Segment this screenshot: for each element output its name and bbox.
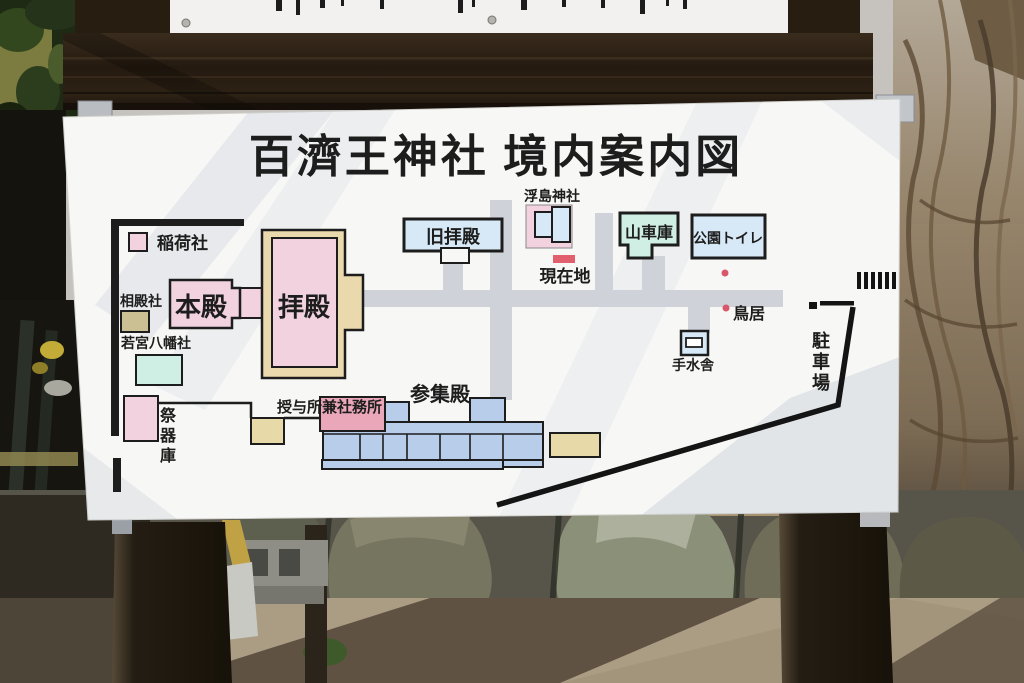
svg-text:駐: 駐 [812,330,830,351]
saikigura-building [124,396,158,441]
map-sign-board: 百濟王神社 境内案内図 稲荷社 相殿社 [60,94,905,525]
small-tan-building-west [251,418,284,444]
path-vertical-east [595,213,613,297]
wood-post-lower-right [779,510,893,683]
ukishima-building-b [552,207,570,242]
juyosho-shamusho-label: 授与所兼社務所 [277,398,382,416]
parking-label: 駐 車 場 [812,330,830,393]
path-main-horizontal [363,290,783,307]
small-tan-building-east [550,433,600,457]
aidono-building [121,311,149,332]
parking-entrance-line [820,301,854,306]
red-dot-marker [722,270,729,277]
wood-post-lower-left [112,522,232,683]
svg-text:庫: 庫 [160,446,176,465]
honden-label: 本殿 [175,292,227,322]
metal-bracket-bottom-left [112,518,132,534]
map-title: 百濟王神社 境内案内図 [249,132,743,182]
wood-beam [63,33,873,110]
parking-entrance-mark [809,302,817,309]
park-toilet-label: 公園トイレ [693,230,763,246]
sanshuden-annex-east [470,398,505,423]
svg-text:車: 車 [812,351,830,372]
sanshuden-label: 参集殿 [410,382,471,406]
sanshuden-annex-west [383,402,409,422]
svg-text:器: 器 [159,427,177,445]
saikigura-label: 祭 器 庫 [159,406,177,465]
ukishima-label: 浮島神社 [524,188,580,204]
inari-label: 稲荷社 [157,233,208,253]
torii-label: 鳥居 [733,304,765,323]
temizusha-label: 手水舎 [672,357,715,373]
current-location-label: 現在地 [540,266,591,286]
path-below-dashigura [642,256,665,294]
screw [182,19,190,27]
honden-haiden-corridor [240,288,264,318]
sanshuden-veranda [322,460,503,469]
wakamiya-building [136,355,182,385]
kyu-haiden-label: 旧拝殿 [426,227,481,247]
dashi-gura-label: 山車庫 [625,223,673,242]
inari-legend-swatch [129,233,147,251]
wakamiya-label: 若宮八幡社 [120,335,191,351]
path-to-temizusha [688,303,710,333]
haiden-label: 拝殿 [278,292,330,322]
svg-text:場: 場 [812,373,830,393]
current-location-marker [553,255,575,263]
screw [488,16,496,24]
aidono-label: 相殿社 [120,293,162,309]
photo-of-shrine-map-sign: 百濟王神社 境内案内図 稲荷社 相殿社 [0,0,1024,683]
torii-dot-marker [723,305,730,312]
scene: 百濟王神社 境内案内図 稲荷社 相殿社 [0,0,1024,683]
svg-text:祭: 祭 [159,406,177,425]
kyu-haiden-annex [441,248,469,263]
temizusha-basin [686,338,702,347]
